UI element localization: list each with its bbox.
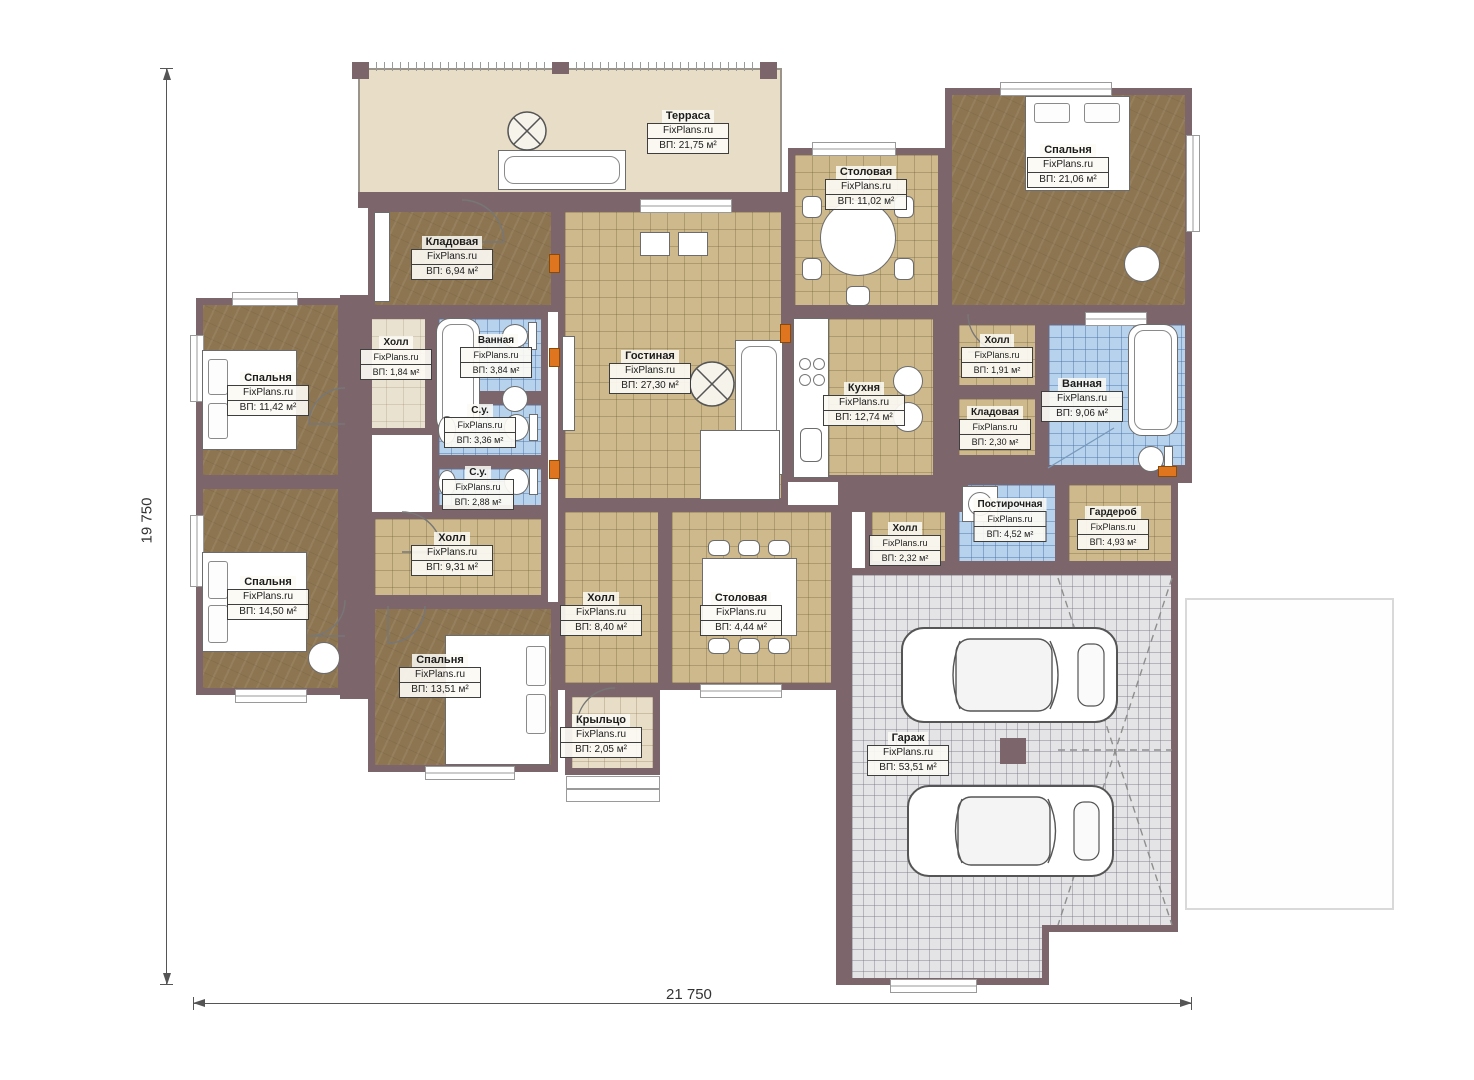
chair xyxy=(768,540,790,556)
terrace-bench xyxy=(498,150,626,190)
dimension-tick xyxy=(193,997,194,1010)
room-area: ВП: 2,32 м² xyxy=(869,550,941,566)
dimension-tick xyxy=(160,984,173,985)
room-label-storage-e: Кладовая FixPlans.ru ВП: 2,30 м² xyxy=(959,402,1031,450)
watermark: FixPlans.ru xyxy=(560,727,642,743)
room-area: ВП: 4,52 м² xyxy=(974,526,1047,542)
room-label-garage: Гараж FixPlans.ru ВП: 53,51 м² xyxy=(867,728,949,776)
dimension-tick xyxy=(160,68,173,69)
watermark: FixPlans.ru xyxy=(825,179,907,195)
watermark: FixPlans.ru xyxy=(411,545,493,561)
dimension-line-horizontal xyxy=(193,1003,1192,1004)
watermark: FixPlans.ru xyxy=(360,349,432,365)
wall xyxy=(836,505,852,985)
room-label-bath-w: Ванная FixPlans.ru ВП: 3,84 м² xyxy=(460,330,532,378)
room-area: ВП: 2,30 м² xyxy=(959,434,1031,450)
watermark: FixPlans.ru xyxy=(560,605,642,621)
armchair xyxy=(308,642,340,674)
chair xyxy=(846,286,870,306)
room-label-bedroom-w1: Спальня FixPlans.ru ВП: 11,42 м² xyxy=(227,368,309,416)
terrace-door xyxy=(640,199,732,213)
chair xyxy=(708,638,730,654)
room-label-bedroom-ne: Спальня FixPlans.ru ВП: 21,06 м² xyxy=(1027,140,1109,188)
porch-step xyxy=(566,776,660,789)
room-area: ВП: 1,91 м² xyxy=(961,362,1033,378)
room-label-dining-top: Столовая FixPlans.ru ВП: 11,02 м² xyxy=(825,162,907,210)
terrace-post xyxy=(352,62,369,79)
stove xyxy=(799,358,823,386)
room-area: ВП: 11,02 м² xyxy=(825,194,907,210)
room-area: ВП: 13,51 м² xyxy=(399,682,481,698)
chair xyxy=(738,540,760,556)
room-label-wc-2: С.у. FixPlans.ru ВП: 2,88 м² xyxy=(442,462,514,510)
garage-notch xyxy=(1042,925,1178,985)
watermark: FixPlans.ru xyxy=(959,419,1031,435)
radiator-marker xyxy=(780,324,791,343)
dimension-line-vertical xyxy=(166,68,167,985)
room-label-kitchen: Кухня FixPlans.ru ВП: 12,74 м² xyxy=(823,378,905,426)
watermark: FixPlans.ru xyxy=(460,347,532,363)
watermark: FixPlans.ru xyxy=(823,395,905,411)
watermark: FixPlans.ru xyxy=(1027,157,1109,173)
room-area: ВП: 8,40 м² xyxy=(560,620,642,636)
dimension-label-vertical: 19 750 xyxy=(138,492,155,550)
toilet-tank xyxy=(529,468,538,495)
room-label-dining-s: Столовая FixPlans.ru ВП: 4,44 м² xyxy=(700,588,782,636)
watermark: FixPlans.ru xyxy=(609,363,691,379)
side-table xyxy=(678,232,708,256)
chair xyxy=(802,196,822,218)
room-area: ВП: 9,06 м² xyxy=(1041,406,1123,422)
room-label-hall-e1: Холл FixPlans.ru ВП: 1,91 м² xyxy=(961,330,1033,378)
watermark: FixPlans.ru xyxy=(961,347,1033,363)
watermark: FixPlans.ru xyxy=(227,385,309,401)
room-area: ВП: 11,42 м² xyxy=(227,400,309,416)
room-area: ВП: 3,84 м² xyxy=(460,362,532,378)
room-label-hall-s: Холл FixPlans.ru ВП: 8,40 м² xyxy=(560,588,642,636)
room-area: ВП: 3,36 м² xyxy=(444,432,516,448)
garage-pillar xyxy=(1000,738,1026,764)
driveway-pad xyxy=(1185,598,1394,910)
terrace-post xyxy=(760,62,777,79)
room-label-wardrobe: Гардероб FixPlans.ru ВП: 4,93 м² xyxy=(1077,502,1149,550)
room-label-bedroom-s: Спальня FixPlans.ru ВП: 13,51 м² xyxy=(399,650,481,698)
room-area: ВП: 2,88 м² xyxy=(442,494,514,510)
watermark: FixPlans.ru xyxy=(1077,519,1149,535)
window xyxy=(1000,82,1112,96)
toilet-tank xyxy=(529,414,538,441)
room-area: ВП: 1,84 м² xyxy=(360,364,432,380)
room-area: ВП: 21,75 м² xyxy=(647,138,729,154)
radiator-marker xyxy=(549,254,560,273)
radiator-marker xyxy=(549,348,560,367)
watermark: FixPlans.ru xyxy=(444,417,516,433)
tv-cabinet xyxy=(562,336,575,431)
floor-plan: Терраса FixPlans.ru ВП: 21,75 м² Столова… xyxy=(0,0,1474,1080)
window xyxy=(890,979,977,993)
watermark: FixPlans.ru xyxy=(869,535,941,551)
radiator-marker xyxy=(1158,466,1177,477)
room-label-living: Гостиная FixPlans.ru ВП: 27,30 м² xyxy=(609,346,691,394)
dimension-label-horizontal: 21 750 xyxy=(660,986,718,1003)
wall xyxy=(945,305,1192,325)
window xyxy=(425,766,515,780)
watermark: FixPlans.ru xyxy=(974,511,1047,527)
dining-table-round xyxy=(820,200,896,276)
watermark: FixPlans.ru xyxy=(647,123,729,139)
room-label-hall-e2: Холл FixPlans.ru ВП: 2,32 м² xyxy=(869,518,941,566)
window xyxy=(235,689,307,703)
room-label-laundry: Постирочная FixPlans.ru ВП: 4,52 м² xyxy=(974,494,1047,542)
room-label-hall-small-w: Холл FixPlans.ru ВП: 1,84 м² xyxy=(360,332,432,380)
side-table xyxy=(640,232,670,256)
window xyxy=(700,684,782,698)
room-area: ВП: 53,51 м² xyxy=(867,760,949,776)
room-area: ВП: 21,06 м² xyxy=(1027,172,1109,188)
room-area: ВП: 9,31 м² xyxy=(411,560,493,576)
chair xyxy=(738,638,760,654)
window xyxy=(812,142,896,156)
room-area: ВП: 12,74 м² xyxy=(823,410,905,426)
dimension-tick xyxy=(1191,997,1192,1010)
kitchen-sink xyxy=(800,428,822,462)
shelf xyxy=(374,212,390,302)
window xyxy=(1186,135,1200,232)
room-area: ВП: 27,30 м² xyxy=(609,378,691,394)
room-garage xyxy=(845,568,1178,985)
chair xyxy=(894,258,914,280)
watermark: FixPlans.ru xyxy=(1041,391,1123,407)
bathtub xyxy=(1128,324,1178,436)
chair xyxy=(802,258,822,280)
room-label-wc-1: С.у. FixPlans.ru ВП: 3,36 м² xyxy=(444,400,516,448)
chair xyxy=(768,638,790,654)
room-label-bath-e: Ванная FixPlans.ru ВП: 9,06 м² xyxy=(1041,374,1123,422)
room-label-bedroom-w2: Спальня FixPlans.ru ВП: 14,50 м² xyxy=(227,572,309,620)
terrace-post xyxy=(552,62,569,74)
armchair xyxy=(1124,246,1160,282)
radiator-marker xyxy=(549,460,560,479)
watermark: FixPlans.ru xyxy=(867,745,949,761)
room-label-hall-mid: Холл FixPlans.ru ВП: 9,31 м² xyxy=(411,528,493,576)
sofa-corner xyxy=(700,430,780,500)
room-label-porch: Крыльцо FixPlans.ru ВП: 2,05 м² xyxy=(560,710,642,758)
room-label-storage-nw: Кладовая FixPlans.ru ВП: 6,94 м² xyxy=(411,232,493,280)
wall xyxy=(952,456,1042,484)
watermark: FixPlans.ru xyxy=(399,667,481,683)
room-label-terrace: Терраса FixPlans.ru ВП: 21,75 м² xyxy=(647,106,729,154)
room-area: ВП: 2,05 м² xyxy=(560,742,642,758)
room-area: ВП: 4,93 м² xyxy=(1077,534,1149,550)
watermark: FixPlans.ru xyxy=(442,479,514,495)
terrace-edge-hatch xyxy=(360,62,780,71)
watermark: FixPlans.ru xyxy=(700,605,782,621)
porch-step xyxy=(566,789,660,802)
watermark: FixPlans.ru xyxy=(227,589,309,605)
window xyxy=(232,292,298,306)
room-area: ВП: 14,50 м² xyxy=(227,604,309,620)
chair xyxy=(708,540,730,556)
room-area: ВП: 6,94 м² xyxy=(411,264,493,280)
watermark: FixPlans.ru xyxy=(411,249,493,265)
room-area: ВП: 4,44 м² xyxy=(700,620,782,636)
